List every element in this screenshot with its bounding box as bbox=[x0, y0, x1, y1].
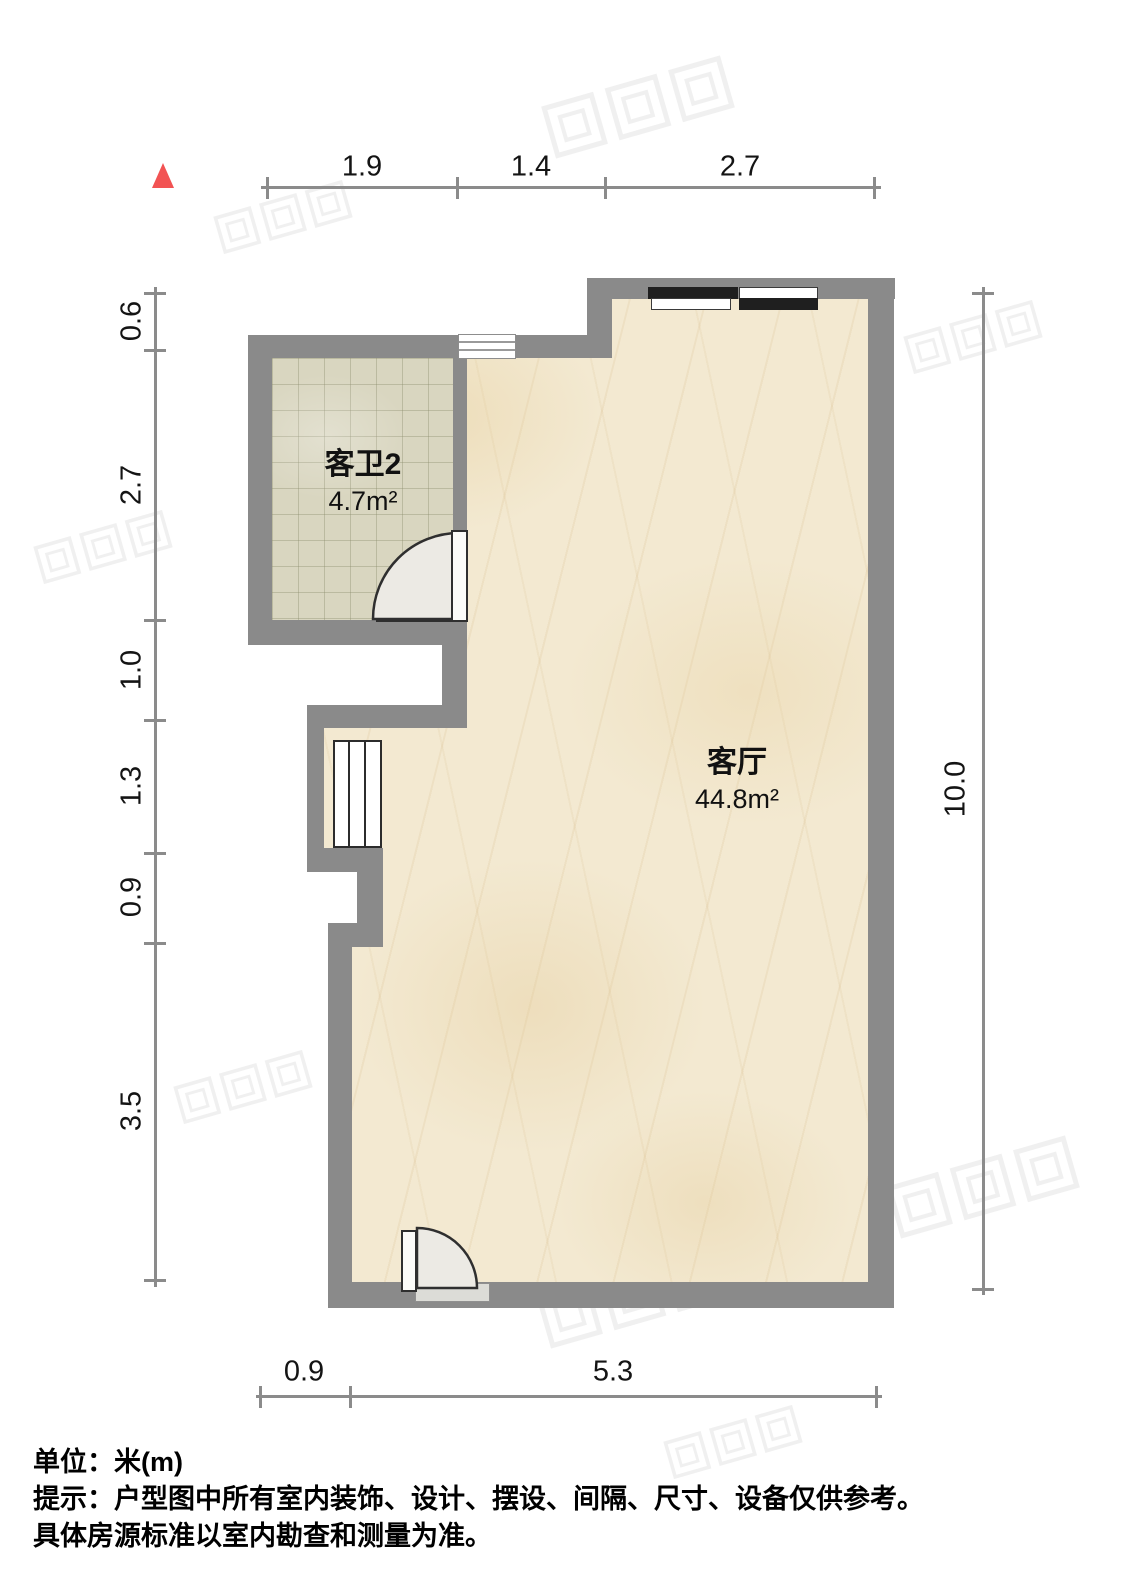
wall-segment bbox=[248, 335, 612, 358]
wall-segment bbox=[307, 705, 467, 728]
watermark bbox=[213, 180, 352, 254]
room-area: 4.7m² bbox=[283, 484, 443, 518]
dimension-value: 1.4 bbox=[511, 151, 551, 184]
door-leaf bbox=[451, 530, 468, 622]
room-label-living: 客厅 44.8m² bbox=[657, 744, 817, 816]
dimension-tick bbox=[972, 1288, 994, 1291]
dimension-tick bbox=[875, 1386, 878, 1408]
watermark bbox=[173, 1050, 312, 1124]
dimension-value: 10.0 bbox=[940, 761, 973, 817]
dimension-tick bbox=[144, 942, 166, 945]
dimension-tick bbox=[144, 852, 166, 855]
dimension-value: 2.7 bbox=[720, 151, 760, 184]
room-area: 44.8m² bbox=[657, 782, 817, 816]
dimension-value: 1.0 bbox=[116, 650, 149, 690]
door-swing-icon bbox=[410, 1222, 490, 1294]
dimension-tick bbox=[259, 1386, 262, 1408]
balcony-window-bar-icon bbox=[651, 298, 731, 310]
dimension-tick bbox=[873, 177, 876, 199]
wall-segment bbox=[307, 705, 324, 872]
door-leaf bbox=[401, 1230, 417, 1292]
dimension-value: 1.3 bbox=[116, 766, 149, 806]
tip-note-line1: 提示：户型图中所有室内装饰、设计、摆设、间隔、尺寸、设备仅供参考。 bbox=[33, 1481, 924, 1518]
wall-segment bbox=[868, 278, 894, 1308]
dimension-tick bbox=[144, 349, 166, 352]
dimension-value: 0.9 bbox=[284, 1356, 324, 1389]
wall-segment bbox=[442, 642, 467, 708]
window-icon bbox=[333, 740, 382, 848]
watermark bbox=[903, 300, 1042, 374]
footer-notes: 单位：米(m) 提示：户型图中所有室内装饰、设计、摆设、间隔、尺寸、设备仅供参考… bbox=[33, 1444, 924, 1555]
dimension-line bbox=[154, 287, 157, 1287]
dimension-value: 0.6 bbox=[116, 301, 149, 341]
dimension-line bbox=[982, 287, 985, 1295]
room-label-bathroom: 客卫2 4.7m² bbox=[283, 446, 443, 518]
room-name: 客厅 bbox=[657, 744, 817, 782]
watermark bbox=[541, 55, 735, 158]
wall-segment bbox=[248, 335, 272, 645]
tip-note-line2: 具体房源标准以室内勘查和测量为准。 bbox=[33, 1518, 924, 1555]
room-name: 客卫2 bbox=[283, 446, 443, 484]
dimension-tick bbox=[144, 292, 166, 295]
dimension-tick bbox=[266, 177, 269, 199]
dimension-value: 0.9 bbox=[116, 877, 149, 917]
wall-segment bbox=[328, 923, 352, 1308]
dimension-tick bbox=[144, 1279, 166, 1282]
dimension-value: 1.9 bbox=[342, 151, 382, 184]
window-icon bbox=[458, 334, 516, 359]
dimension-tick bbox=[456, 177, 459, 199]
floorplan-canvas: 客卫2 4.7m² 客厅 44.8m² 1.9 1.4 2.7 0.6 2.7 … bbox=[0, 0, 1144, 1587]
unit-note: 单位：米(m) bbox=[33, 1444, 924, 1481]
dimension-tick bbox=[144, 719, 166, 722]
dimension-tick bbox=[972, 292, 994, 295]
dimension-tick bbox=[144, 619, 166, 622]
dimension-line bbox=[261, 186, 881, 189]
north-marker-icon bbox=[152, 163, 174, 188]
dimension-tick bbox=[604, 177, 607, 199]
balcony-window-bar-icon bbox=[739, 298, 818, 310]
wall-segment bbox=[357, 872, 383, 927]
dimension-value: 2.7 bbox=[116, 465, 149, 505]
dimension-value: 5.3 bbox=[593, 1356, 633, 1389]
watermark bbox=[33, 510, 172, 584]
dimension-tick bbox=[349, 1386, 352, 1408]
dimension-value: 3.5 bbox=[116, 1091, 149, 1131]
